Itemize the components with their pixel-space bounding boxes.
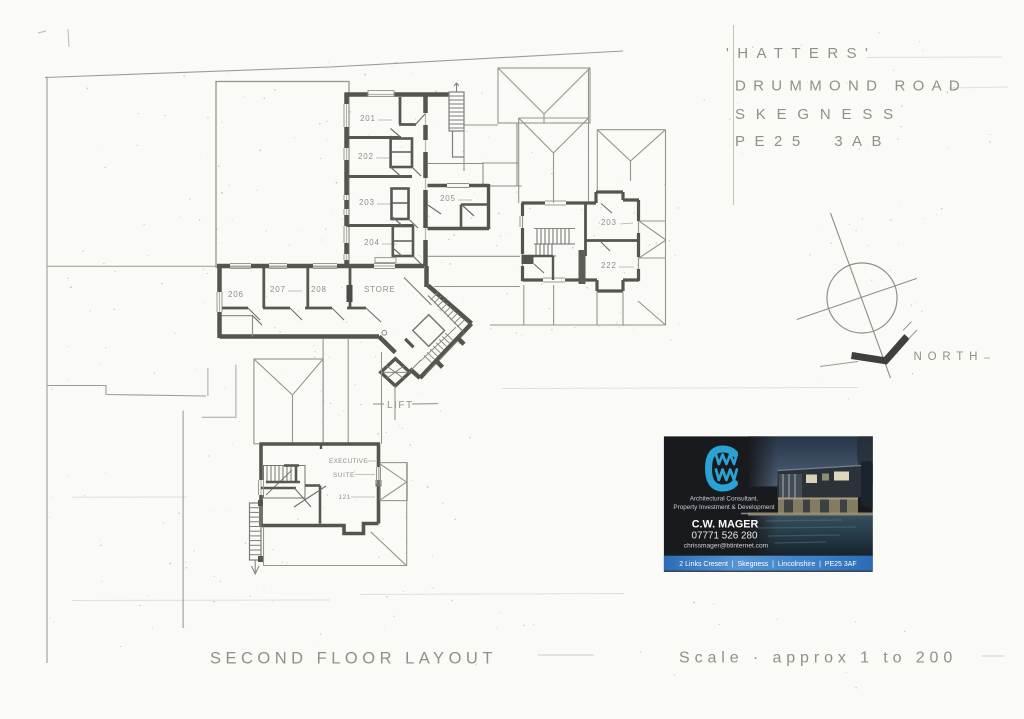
svg-text:206: 206 [228,290,244,299]
svg-text:204: 204 [364,238,380,247]
svg-text:07771 526 280: 07771 526 280 [692,531,758,542]
svg-text:203: 203 [601,218,617,227]
svg-text:201: 201 [360,114,376,123]
svg-text:207: 207 [270,285,286,294]
svg-text:NORTH: NORTH [914,351,984,363]
svg-text:STORE: STORE [364,285,395,294]
svg-text:EXECUTIVE: EXECUTIVE [329,458,368,465]
svg-text:Scale · approx 1 to 200: Scale · approx 1 to 200 [679,650,957,667]
svg-text:SECOND FLOOR LAYOUT: SECOND FLOOR LAYOUT [210,650,497,668]
svg-text:203: 203 [359,198,375,207]
svg-text:SUITE: SUITE [333,472,355,479]
svg-text:222: 222 [601,261,617,270]
svg-text:205: 205 [440,194,456,203]
svg-text:121: 121 [339,494,351,501]
svg-text:2 Links Cresent | Skegness: 2 Links Cresent | Skegness | Lincolnshir… [679,561,856,568]
svg-text:Property Investment & Developm: Property Investment & Development [673,504,774,511]
svg-text:Architectural Consultant.: Architectural Consultant. [690,496,759,503]
svg-text:PE25 3AB: PE25 3AB [735,133,891,150]
svg-text:C.W. MAGER: C.W. MAGER [692,519,759,531]
svg-text:202: 202 [358,152,374,161]
svg-text:SKEGNESS: SKEGNESS [735,106,904,123]
svg-text:LIFT: LIFT [387,400,414,411]
svg-text:chrissmager@btinternet.com: chrissmager@btinternet.com [684,543,769,550]
svg-text:'HATTERS': 'HATTERS' [726,45,876,62]
svg-text:208: 208 [311,285,327,294]
svg-text:DRUMMOND ROAD: DRUMMOND ROAD [735,78,967,95]
